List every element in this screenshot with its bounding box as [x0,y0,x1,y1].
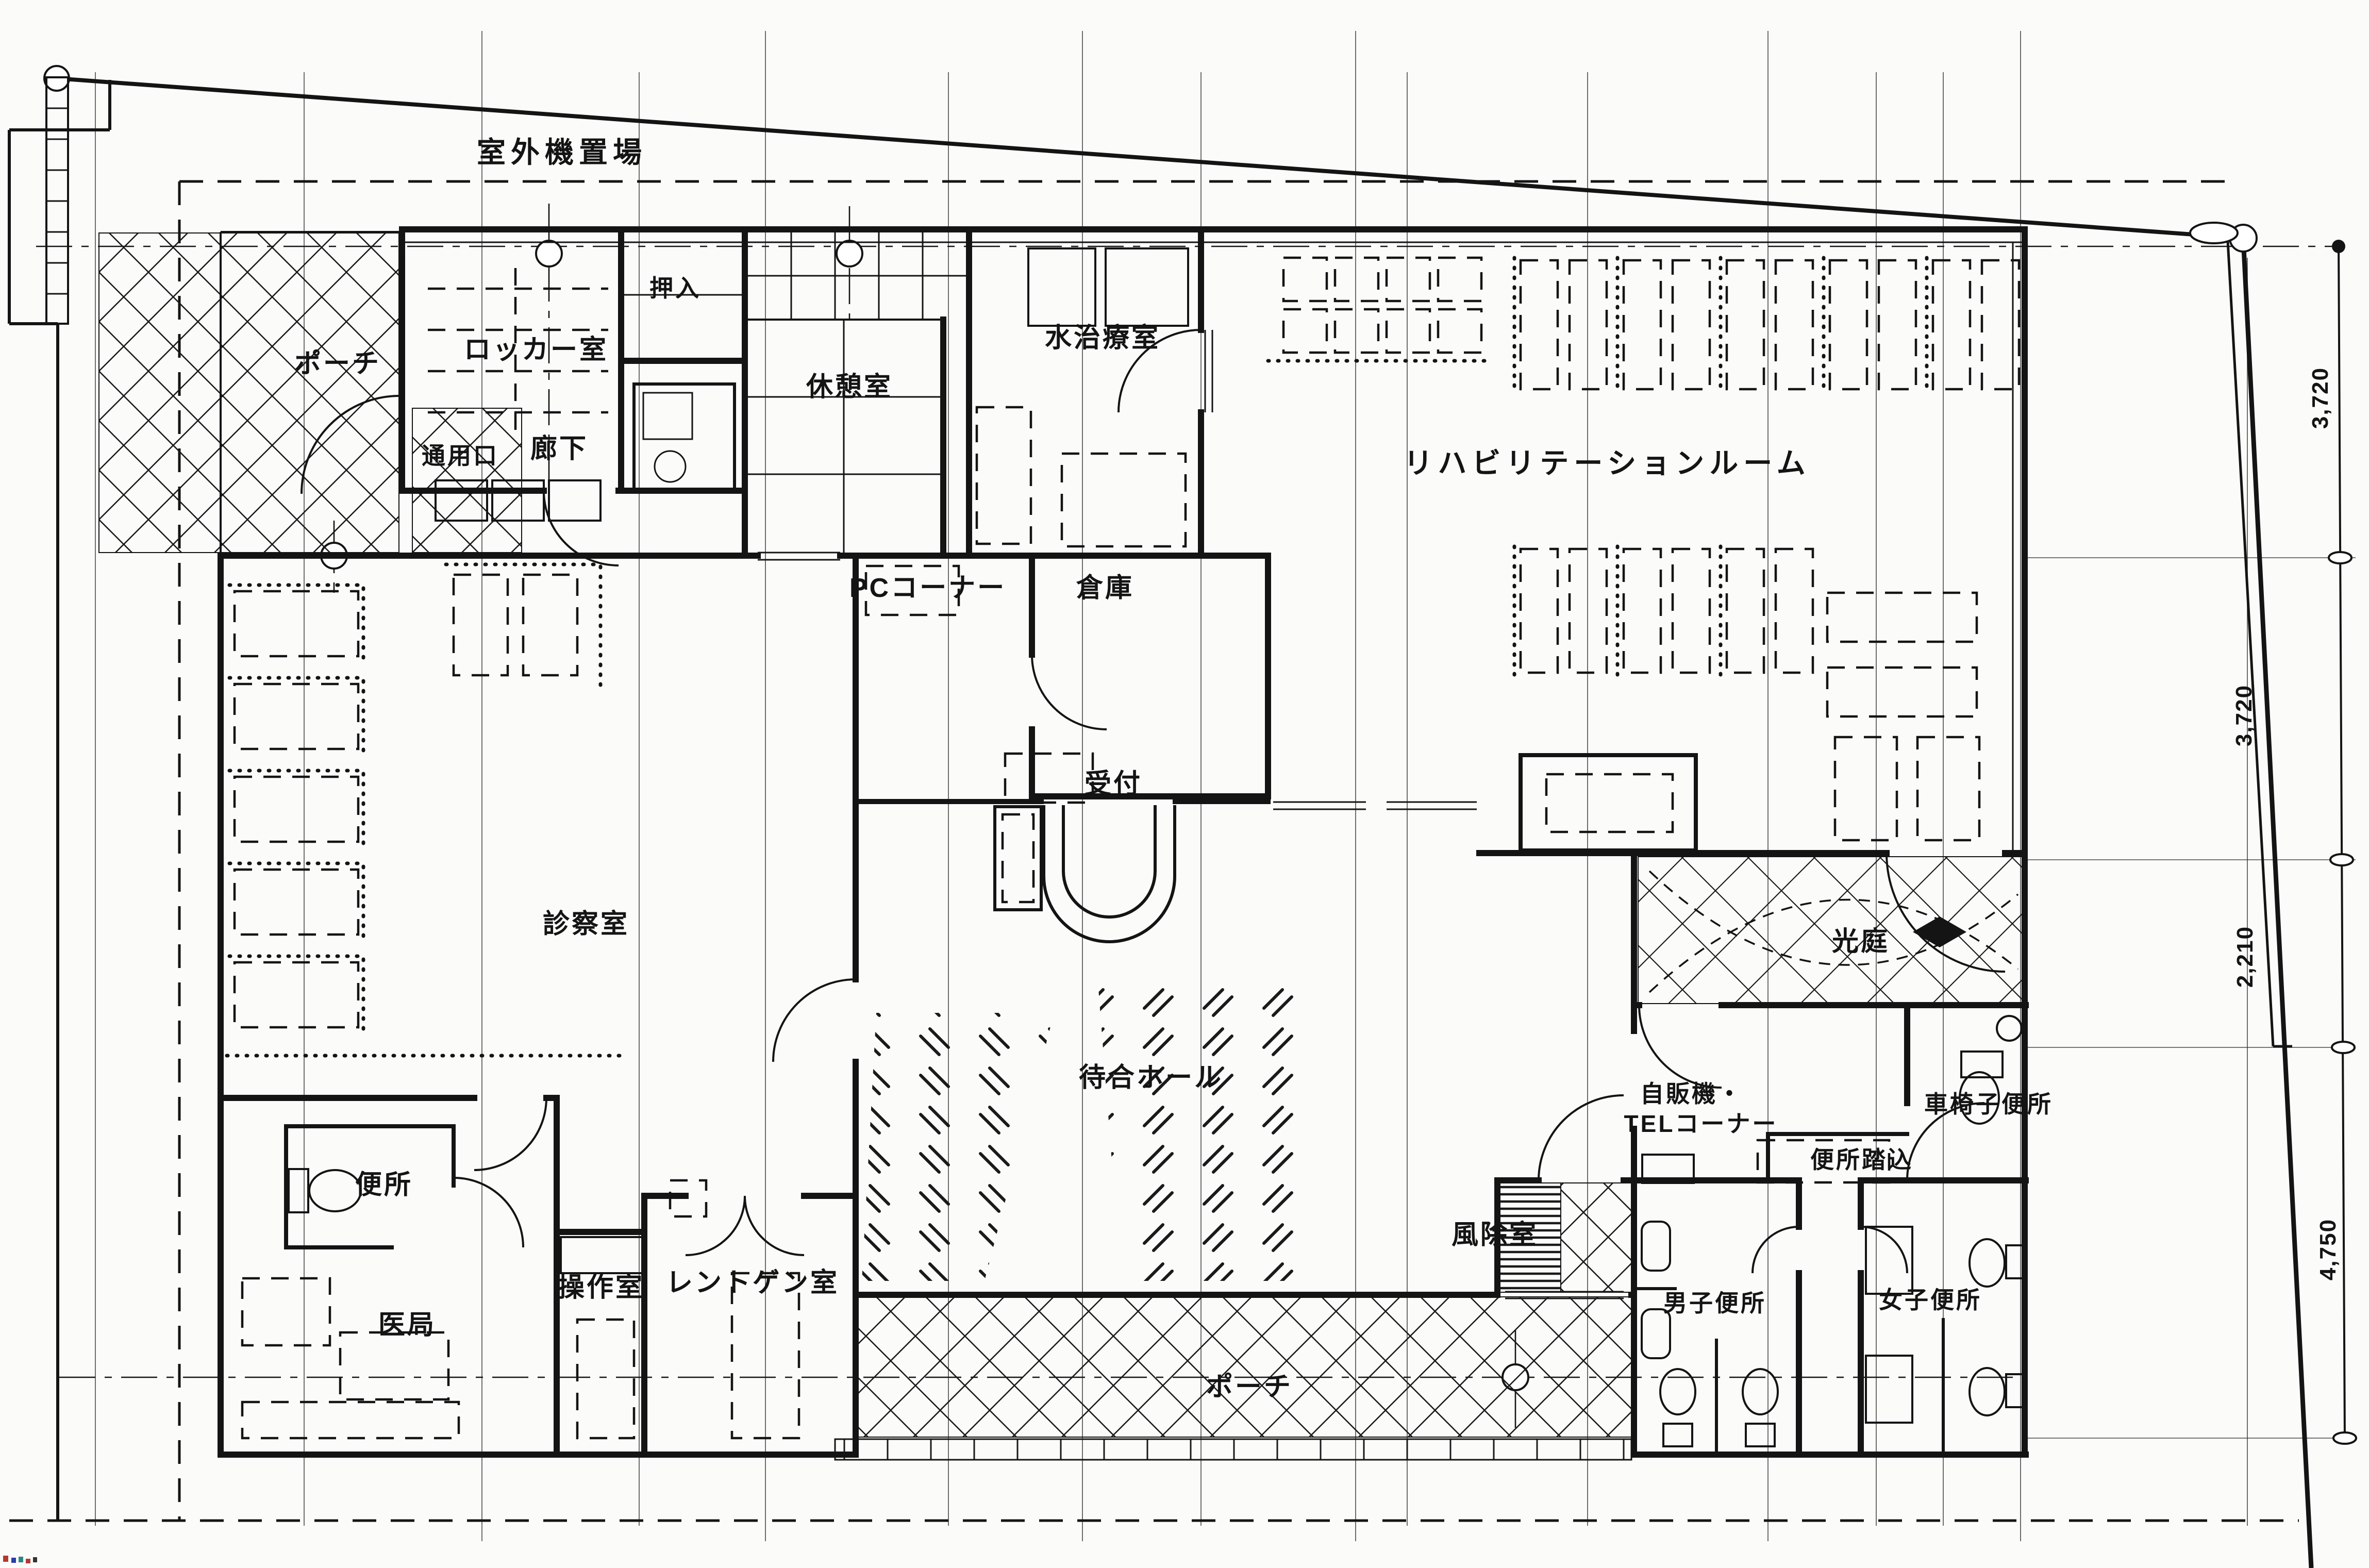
room-label-control-room: 操作室 [558,1273,644,1303]
windbreak-hatch [1561,1183,1632,1292]
boundary-corner-circle [2190,223,2238,243]
room-label-rehabilitation: リハビリテーションルーム [1404,447,1810,479]
room-label-porch-nw: ポーチ [294,349,381,379]
outdoor-unit-area-label: 室外機置場 [477,136,647,169]
room-label-storage: 倉庫 [1076,573,1134,603]
waiting-chairs-right [1098,982,1304,1281]
dimension-node [2333,1432,2356,1444]
room-label-doctors-office: 医局 [378,1310,436,1340]
dimension-right-middle: 2,210 [2232,926,2258,988]
room-label-vending-line2: TELコーナー [1624,1110,1778,1137]
room-label-pc-corner: PCコーナー [849,573,1006,603]
room-label-corridor: 廊下 [530,434,588,464]
dimension-right-top: 3,720 [2308,367,2333,429]
room-label-toilet-vestibule: 便所踏込 [1810,1146,1913,1173]
dimension-node [2329,552,2351,563]
dimension-right-lower: 4,750 [2315,1219,2341,1280]
dimension-node [2332,240,2345,253]
room-label-windbreak: 風除室 [1452,1220,1538,1250]
light-court-hatch [1638,857,2024,1004]
porch-south-hatch [857,1297,1631,1437]
dimension-right-upper: 3,720 [2231,685,2257,746]
room-label-break-room: 休憩室 [806,372,893,402]
room-label-mens-toilet: 男子便所 [1663,1290,1766,1316]
room-label-porch-south: ポーチ [1206,1372,1293,1402]
room-label-locker: ロッカー室 [464,335,608,365]
floor-plan-drawing: 室外機置場 ポーチ 押入 ロッカー室 休憩室 水治療室 通用口 廊下 リハビリテ… [0,0,2369,1568]
room-label-reception: 受付 [1085,769,1142,799]
room-label-womens-toilet: 女子便所 [1879,1287,1982,1313]
room-label-closet: 押入 [649,275,701,302]
room-label-wheelchair-toilet: 車椅子便所 [1924,1091,2053,1117]
room-label-vending-line1: 自販機・ [1640,1080,1743,1107]
room-label-examination: 診察室 [543,909,629,939]
room-label-staff-toilet: 便所 [355,1170,413,1200]
room-label-light-court: 光庭 [1832,927,1890,957]
centerline-marker [536,241,562,266]
room-label-xray: レントゲン室 [666,1268,839,1298]
scan-artifacts [3,1556,37,1563]
room-label-hydrotherapy: 水治療室 [1045,323,1160,353]
porch-tile-edge [835,1439,1631,1460]
room-label-service-entrance: 通用口 [422,442,499,469]
centerline-marker [837,241,862,266]
waiting-chairs-left [862,1013,1054,1281]
dimension-node [2332,1042,2355,1053]
room-label-waiting-hall: 待合ホール [1079,1063,1223,1093]
hatched-areas [99,233,2024,1460]
porch-nw-hatch [99,233,399,553]
dimension-node [2330,854,2353,865]
floor-plan-page: 室外機置場 ポーチ 押入 ロッカー室 休憩室 水治療室 通用口 廊下 リハビリテ… [0,0,2369,1568]
